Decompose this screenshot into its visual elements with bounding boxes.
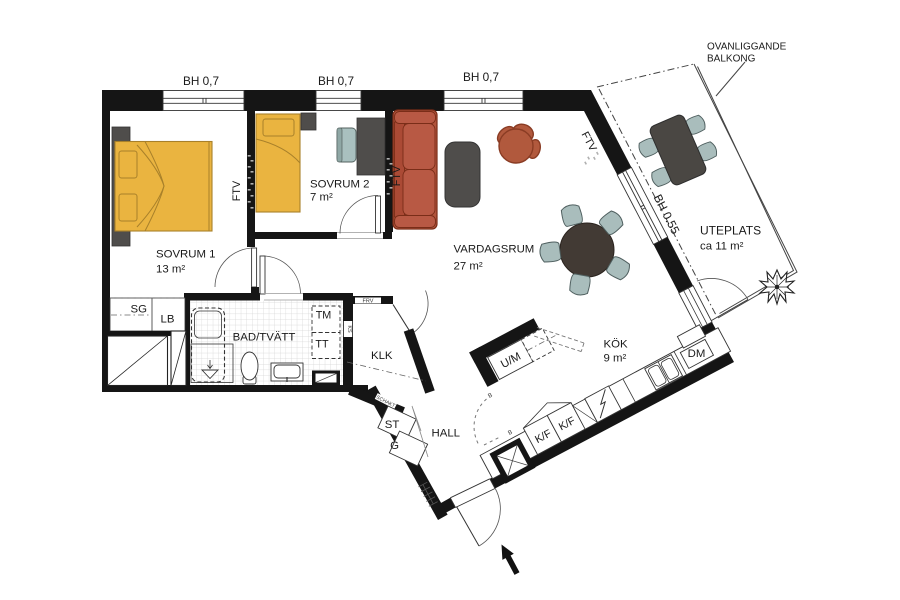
svg-text:FTV: FTV xyxy=(231,180,243,201)
svg-text:SG: SG xyxy=(131,304,148,316)
svg-text:BH 0,7: BH 0,7 xyxy=(183,74,219,88)
svg-text:27 m²: 27 m² xyxy=(454,261,483,273)
svg-text:G: G xyxy=(390,440,399,452)
svg-text:KLK: KLK xyxy=(371,350,393,362)
svg-text:BAD/TVÄTT: BAD/TVÄTT xyxy=(233,332,296,344)
svg-text:DM: DM xyxy=(688,348,706,360)
svg-text:OVANLIGGANDE: OVANLIGGANDE xyxy=(707,42,787,53)
svg-text:7 m²: 7 m² xyxy=(310,192,333,204)
svg-text:VARDAGSRUM: VARDAGSRUM xyxy=(454,244,535,256)
svg-text:TT: TT xyxy=(315,339,329,351)
svg-text:FTV: FTV xyxy=(391,165,403,186)
svg-text:LB: LB xyxy=(161,313,175,325)
svg-text:BH 0,7: BH 0,7 xyxy=(463,70,499,84)
svg-text:13 m²: 13 m² xyxy=(156,263,185,275)
svg-text:KÖK: KÖK xyxy=(604,339,628,351)
svg-text:BH 0,7: BH 0,7 xyxy=(318,74,354,88)
svg-text:SOVRUM 2: SOVRUM 2 xyxy=(310,179,370,191)
svg-text:ST: ST xyxy=(385,419,400,431)
svg-text:BALKONG: BALKONG xyxy=(707,54,756,65)
svg-text:ca 11 m²: ca 11 m² xyxy=(700,241,744,253)
svg-text:UTEPLATS: UTEPLATS xyxy=(700,224,761,238)
svg-text:9 m²: 9 m² xyxy=(604,353,627,365)
svg-text:KS: KS xyxy=(346,325,352,333)
svg-text:FRV: FRV xyxy=(363,299,374,305)
svg-text:HALL: HALL xyxy=(432,428,461,440)
svg-text:TM: TM xyxy=(316,310,332,322)
svg-text:SOVRUM 1: SOVRUM 1 xyxy=(156,249,216,261)
